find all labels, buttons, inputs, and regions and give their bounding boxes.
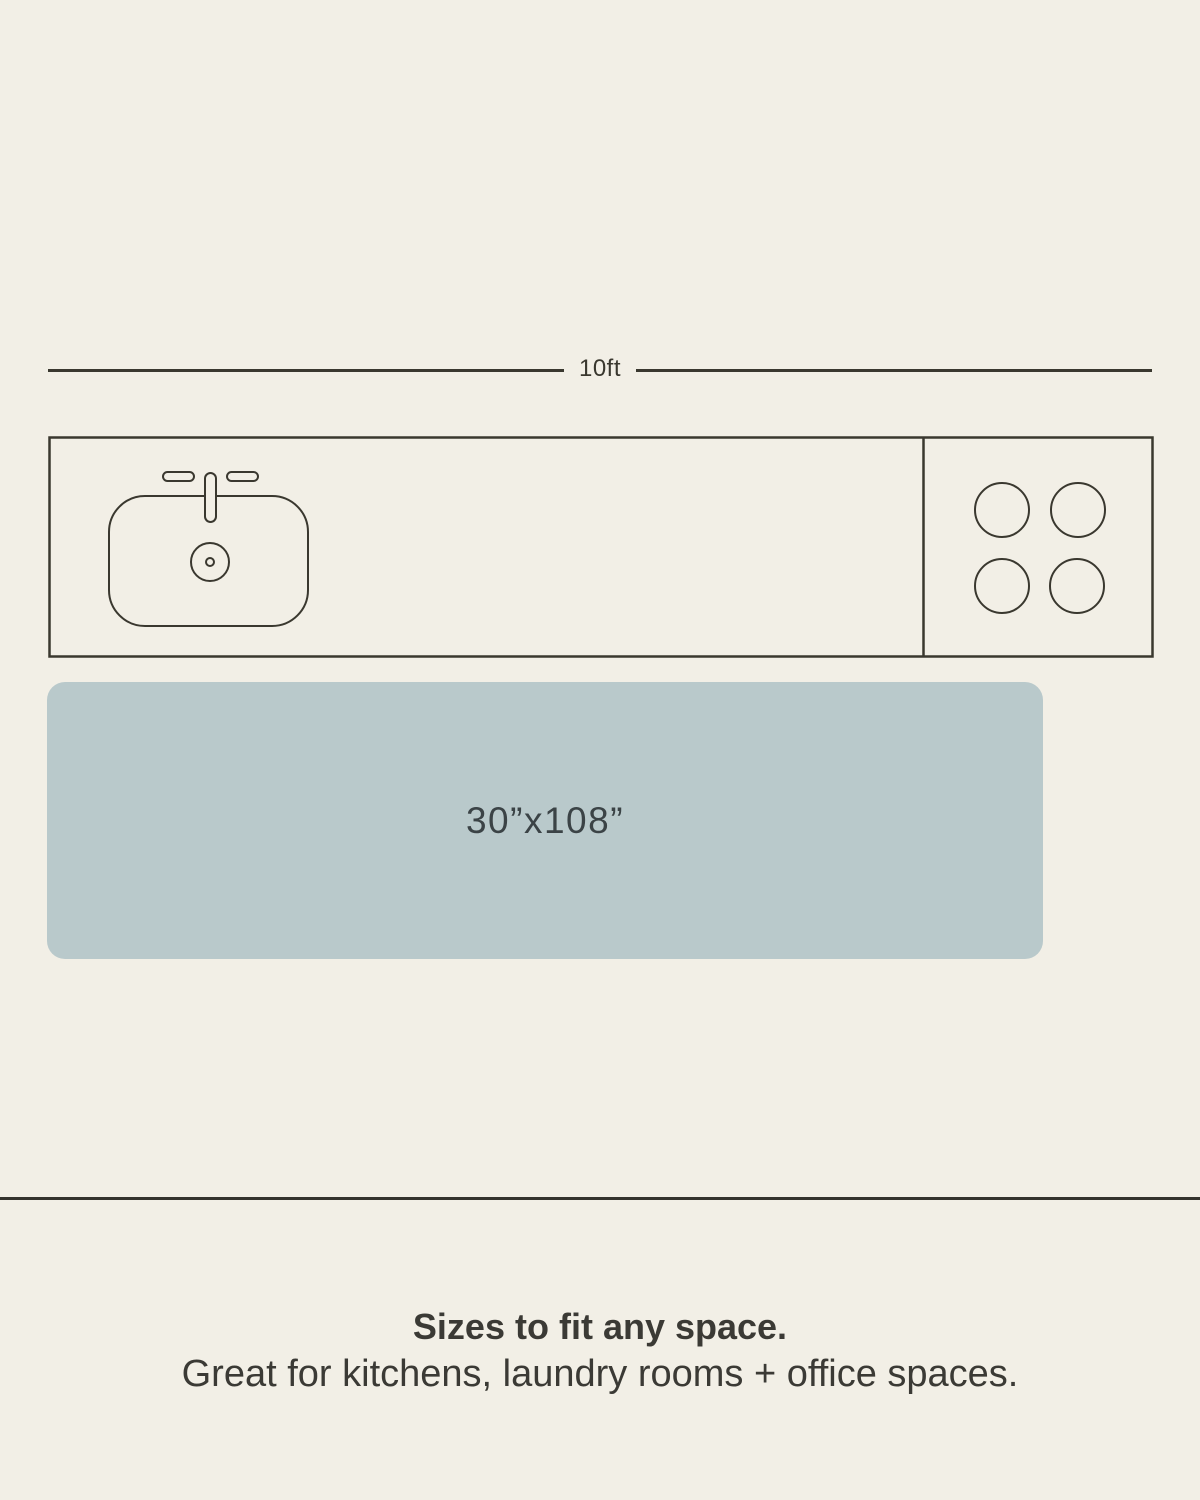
stove-burners-icon	[975, 483, 1105, 613]
rug-size-swatch: 30”x108”	[47, 682, 1043, 959]
burner-bottom-right	[1050, 559, 1104, 613]
caption-headline: Sizes to fit any space.	[0, 1306, 1200, 1347]
faucet-spout	[205, 473, 216, 522]
section-divider	[0, 1197, 1200, 1200]
measure-line-right	[636, 369, 1152, 372]
counter-width-measurement: 10ft	[48, 356, 1152, 384]
rug-size-label: 30”x108”	[466, 800, 624, 842]
drain-center-dot	[206, 558, 214, 566]
burner-top-right	[1051, 483, 1105, 537]
caption-subtext: Great for kitchens, laundry rooms + offi…	[0, 1353, 1200, 1397]
burner-bottom-left	[975, 559, 1029, 613]
faucet-handle-left	[163, 472, 194, 481]
caption-block: Sizes to fit any space. Great for kitche…	[0, 1306, 1200, 1397]
counter-outline	[50, 438, 1153, 657]
kitchen-counter-diagram	[48, 436, 1154, 658]
size-guide-infographic: 10ft 30”x108” Sizes to fit a	[0, 0, 1200, 1500]
measure-line-left	[48, 369, 564, 372]
burner-top-left	[975, 483, 1029, 537]
faucet-handle-right	[227, 472, 258, 481]
drain-icon	[191, 543, 229, 581]
measure-label: 10ft	[579, 355, 621, 383]
sink-icon	[109, 472, 308, 626]
